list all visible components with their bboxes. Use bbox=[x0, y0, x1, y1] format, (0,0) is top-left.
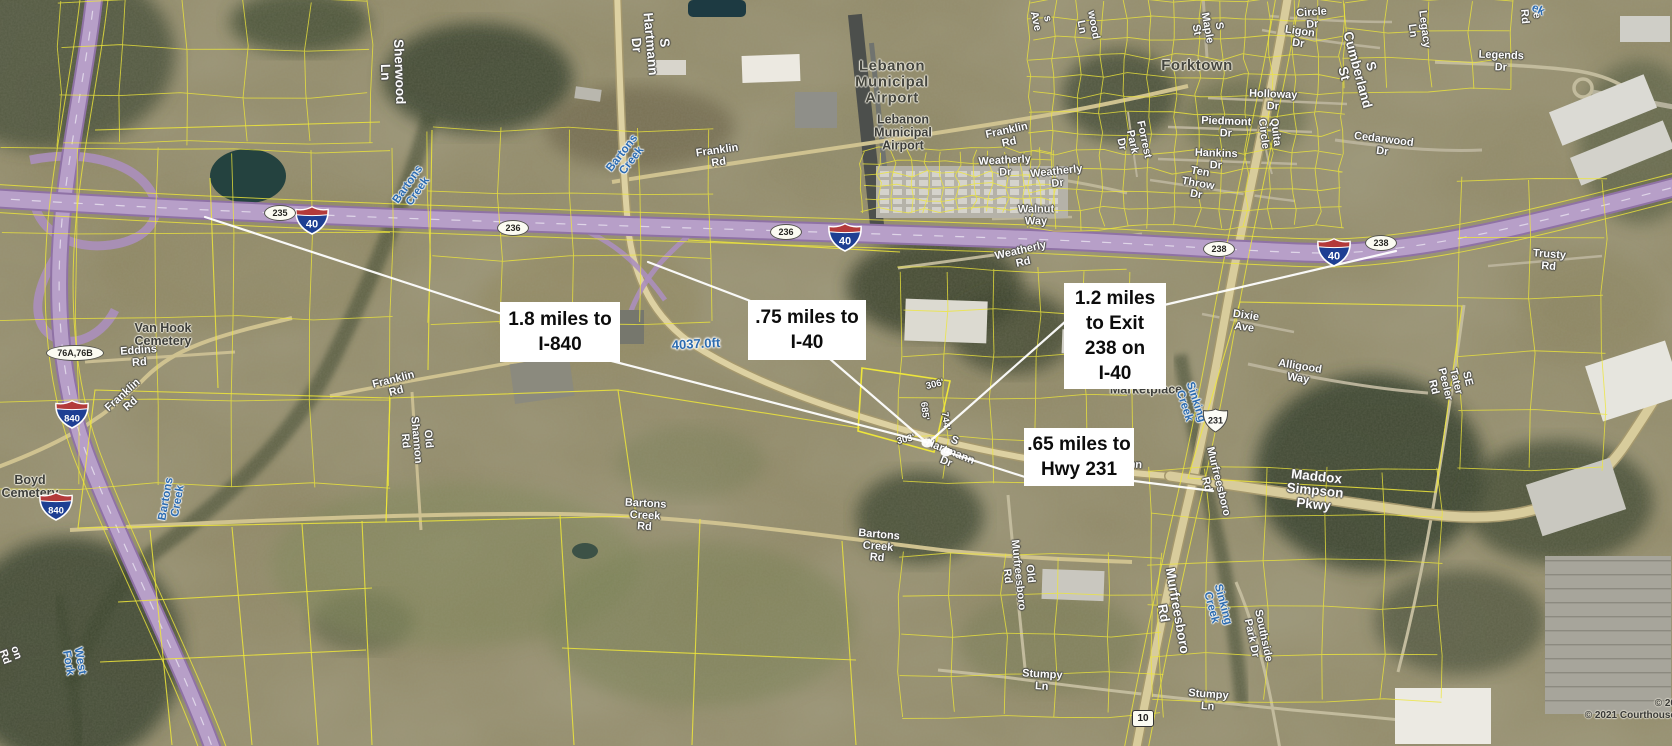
mile-marker-235: 235 bbox=[264, 205, 296, 221]
callout-line: 1.2 miles bbox=[1066, 286, 1164, 311]
callout-line: .75 miles to bbox=[750, 305, 864, 330]
measurement-line bbox=[947, 452, 1028, 478]
distance-callout-c4: .65 miles toHwy 231 bbox=[1024, 428, 1134, 486]
callout-line: .65 miles to bbox=[1026, 432, 1132, 457]
attribution-line: © 20 bbox=[1585, 698, 1672, 710]
measurement-lines-layer bbox=[0, 0, 1672, 746]
svg-text:840: 840 bbox=[64, 414, 80, 425]
measurement-endpoint-dot bbox=[941, 448, 952, 457]
callout-line: I-40 bbox=[1066, 361, 1164, 386]
interstate-840-shield-icon: 840 bbox=[55, 400, 89, 434]
mile-marker-238: 238 bbox=[1365, 235, 1397, 251]
state-route-10-marker: 10 bbox=[1132, 710, 1154, 727]
interstate-40-shield-icon: 40 bbox=[1317, 238, 1351, 272]
map-attribution: © 20 © 2021 Courthouse bbox=[1585, 698, 1672, 722]
mile-marker-236: 236 bbox=[497, 220, 529, 236]
callout-line: 1.8 miles to bbox=[502, 307, 618, 332]
mile-marker-236: 236 bbox=[770, 224, 802, 240]
distance-callout-c2: .75 miles toI-40 bbox=[748, 300, 866, 360]
measurement-line bbox=[1164, 251, 1396, 305]
svg-text:840: 840 bbox=[48, 506, 64, 517]
callout-line: Hwy 231 bbox=[1026, 457, 1132, 482]
svg-text:40: 40 bbox=[1328, 251, 1340, 263]
callout-line: to Exit bbox=[1066, 311, 1164, 336]
distance-callout-c1: 1.8 miles toI-840 bbox=[500, 302, 620, 362]
exit-76A76B: 76A,76B bbox=[46, 345, 104, 361]
measurement-line bbox=[1134, 481, 1213, 491]
callout-line: 238 on bbox=[1066, 336, 1164, 361]
measurement-line bbox=[205, 217, 502, 314]
measurement-line bbox=[928, 321, 1066, 443]
svg-text:40: 40 bbox=[839, 236, 851, 248]
interstate-40-shield-icon: 40 bbox=[295, 206, 329, 240]
interstate-40-shield-icon: 40 bbox=[828, 223, 862, 257]
map-canvas[interactable]: Sherwood LnS Hartmann DrFranklin RdLeban… bbox=[0, 0, 1672, 746]
attribution-line: © 2021 Courthouse bbox=[1585, 710, 1672, 722]
svg-text:40: 40 bbox=[306, 219, 318, 231]
mile-marker-238: 238 bbox=[1203, 241, 1235, 257]
us-highway-231-shield-icon: 231 bbox=[1202, 408, 1229, 438]
interstate-840-shield-icon: 840 bbox=[39, 492, 73, 526]
callout-line: I-840 bbox=[502, 332, 618, 357]
measurement-endpoint-dot bbox=[922, 439, 933, 448]
svg-text:231: 231 bbox=[1208, 416, 1223, 426]
measurement-line bbox=[648, 262, 753, 302]
distance-callout-c3: 1.2 milesto Exit238 onI-40 bbox=[1064, 283, 1166, 389]
callout-line: I-40 bbox=[750, 330, 864, 355]
